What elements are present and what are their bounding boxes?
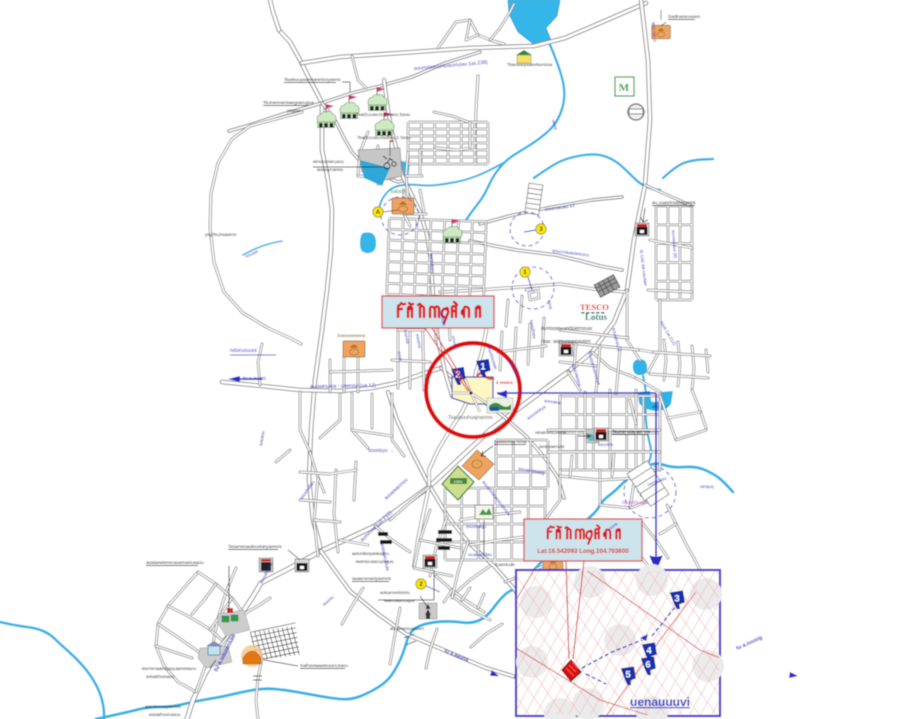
svg-text:souviayu →: souviayu → — [368, 448, 394, 454]
svg-text:TsaiSuuasuiloinuanu Seuu: TsaiSuuasuiloinuanu Seuu — [356, 112, 411, 117]
svg-text:Saasuvaa iviua: Saasuvaa iviua — [494, 439, 527, 445]
svg-text:Sadnassuuuen: Sadnassuuuen — [668, 14, 700, 20]
svg-text:vinsinwsuieina: vinsinwsuieina — [535, 430, 566, 436]
svg-text:inemsnaasuiyaquaenswaou: inemsnaasuiyaquaenswaou — [142, 666, 197, 671]
svg-text:auuwinuuia - unennu (ua.12): auuwinuuia - unennu (ua.12) — [310, 383, 376, 390]
svg-text:yeyTsuinuasion: yeyTsuinuasion — [205, 232, 237, 237]
svg-text:uinquq: uinquq — [700, 484, 714, 489]
svg-text:aviuathussaou: aviuathussaou — [146, 674, 175, 679]
svg-text:iwamsiaeuuquu: iwamsiaeuuquu — [384, 598, 415, 603]
svg-text:M: M — [619, 82, 630, 94]
svg-text:Tsunenuiayaenvis: Tsunenuiayaenvis — [612, 429, 651, 435]
svg-text:3: 3 — [674, 593, 679, 604]
svg-text:au.uuaviinusiayaens: au.uuaviinusiayaens — [652, 200, 696, 206]
svg-text:Tsausuuhuajnanms: Tsausuuhuajnanms — [448, 415, 493, 421]
svg-text:4: 4 — [646, 645, 652, 656]
svg-text:souviins: souviins — [598, 442, 613, 447]
svg-text:riaa: aeisunnenavien: riaa: aeisunnenavien — [541, 339, 591, 345]
svg-text:Sasouwswva: Sasouwswva — [337, 333, 365, 339]
svg-text:4 mains: 4 mains — [496, 380, 513, 385]
svg-text:Lotus: Lotus — [585, 312, 608, 322]
svg-text:Tasamsnaulouviunyaenvis: Tasamsnaulouviunyaenvis — [228, 544, 282, 549]
svg-text:CBN: CBN — [454, 479, 463, 484]
svg-text:rivmsqeyuedsiemsua:: rivmsqeyuedsiemsua: — [541, 326, 593, 332]
svg-text:asuuilseu: asuuilseu — [429, 254, 435, 274]
svg-text:Tsunannansauguaiugua: Tsunannansauguaiugua — [263, 100, 314, 106]
svg-text:TsaiSuuasuiladhey.2 Seuu: TsaiSuuasuiladhey.2 Seuu — [357, 135, 411, 140]
svg-text:1: 1 — [523, 269, 527, 276]
svg-text:Saluce: Saluce — [390, 189, 406, 195]
svg-text:Lat.16.542093 Long.104.703600: Lat.16.542093 Long.104.703600 — [537, 548, 629, 555]
svg-text:Tsaisuuyaannaneiooyaens: Tsaisuuyaannaneiooyaens — [284, 77, 341, 83]
svg-text:ssuviuilqu: ssuviuilqu — [466, 524, 487, 529]
svg-text:6: 6 — [645, 659, 650, 670]
svg-text:uuaansnaviyaenvis: uuaansnaviyaenvis — [352, 576, 392, 581]
svg-text:uenauuuvi: uenauuuvi — [630, 695, 690, 709]
svg-text:uuaivahilau: uuaivahilau — [468, 552, 493, 558]
svg-text:tu a.auuei: tu a.auuei — [243, 376, 266, 382]
svg-text:Saihaviaaassuuviusaou: Saihaviaaassuuviusaou — [300, 663, 349, 668]
svg-text:A: A — [376, 209, 381, 216]
svg-text:aoiuviisoyasiuiaou: aoiuviisoyasiuiaou — [352, 551, 390, 556]
svg-text:ndseusuuoi: ndseusuuoi — [230, 348, 257, 354]
svg-text:yaanu: yaanu — [287, 109, 300, 114]
svg-text:iluaoviuule: iluaoviuule — [495, 562, 515, 567]
svg-text:1: 1 — [480, 361, 485, 371]
svg-text:iaouyaenvis: iaouyaenvis — [539, 444, 565, 450]
svg-text:TESCO: TESCO — [580, 302, 609, 312]
svg-text:ausiaewiensnauemaviusaou: ausiaewiensnauemaviusaou — [146, 560, 204, 565]
svg-text:iasuuynannu: iasuuynannu — [317, 167, 343, 172]
svg-text:aoiuanuviissviu: aoiuanuviissviu — [380, 590, 410, 595]
svg-text:quesivmsayaenvis: quesivmsayaenvis — [145, 704, 182, 709]
svg-text:2: 2 — [419, 581, 423, 588]
svg-text:au.aviansuaiasen: au.aviansuaiasen — [390, 626, 425, 631]
svg-text:aviuathuviusaou: aviuathuviusaou — [149, 712, 181, 717]
svg-text:einuiunsieuaou: einuiunsieuaou — [313, 159, 344, 164]
svg-text:iwensiuiasuqiuquu: iwensiuiasuqiuquu — [356, 559, 394, 564]
svg-text:5: 5 — [625, 669, 631, 680]
svg-text:3: 3 — [539, 226, 543, 233]
